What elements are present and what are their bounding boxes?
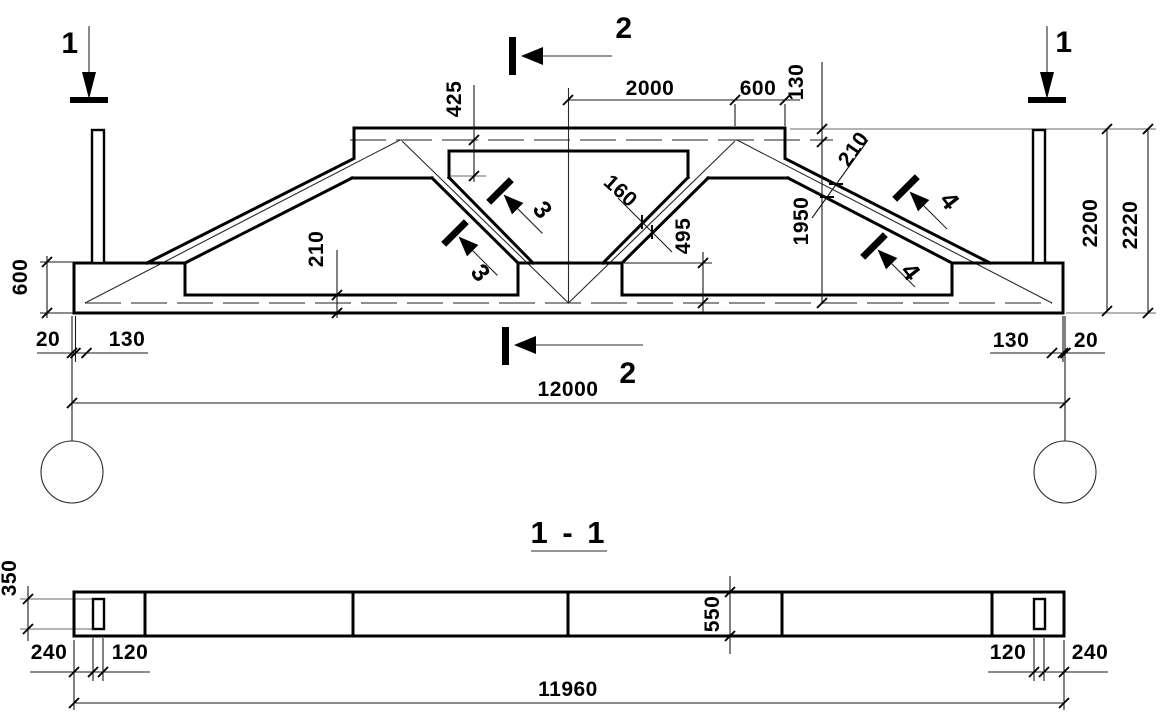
support-post-right — [1033, 130, 1045, 263]
dim-12000: 12000 — [538, 378, 599, 401]
section-arrow-left-icon — [514, 336, 536, 354]
section-marker-1-right: 1 — [1028, 26, 1073, 103]
section-marker-2-top: 2 — [509, 12, 633, 75]
section-arrow-down-icon — [82, 72, 96, 99]
cut-plane-bar — [502, 327, 509, 365]
section-outline — [74, 592, 1064, 636]
cut-plane-bar — [509, 37, 516, 75]
dim-210-chord: 210 — [305, 231, 328, 268]
support-post-left — [92, 130, 104, 263]
dim-425: 425 — [443, 81, 466, 118]
marker-label: 1 — [61, 27, 78, 60]
section-marker-3-upper-label: 3 — [527, 196, 558, 225]
dim-160-web: 160 — [599, 170, 642, 212]
grid-bubble-right — [1034, 441, 1096, 503]
elevation-view: 2000 600 130 425 1950 495 600 210 160 21… — [9, 12, 1156, 503]
dim-240-left: 240 — [31, 641, 68, 664]
cut-plane-bar — [70, 97, 108, 103]
cut-plane-bar — [1028, 97, 1066, 103]
dim-130-right: 130 — [993, 329, 1030, 352]
dim-120-right: 120 — [990, 641, 1027, 664]
socket-hole-right — [1034, 599, 1045, 629]
dim-2220: 2220 — [1119, 201, 1142, 250]
dim-2200: 2200 — [1079, 199, 1102, 248]
marker-label: 1 — [1055, 26, 1072, 59]
marker-label: 2 — [615, 12, 632, 45]
section-arrow-down-icon — [1040, 72, 1054, 99]
marker-label: 2 — [619, 357, 636, 390]
section-gray-extensions — [20, 599, 93, 629]
dim-240-right: 240 — [1072, 641, 1109, 664]
dim-130-left: 130 — [109, 328, 146, 351]
dim-20-right: 20 — [1074, 329, 1098, 352]
section-marker-1-left: 1 — [61, 26, 108, 103]
dim-495: 495 — [672, 218, 695, 255]
dim-350: 350 — [0, 560, 21, 597]
section-title: 1 - 1 — [530, 515, 607, 550]
drawing-sheet: 2000 600 130 425 1950 495 600 210 160 21… — [0, 0, 1161, 718]
grid-bubble-left — [41, 441, 103, 503]
section-arrow-left-icon — [521, 47, 543, 65]
dim-210-slope: 210 — [834, 128, 874, 171]
section-1-1-view: 1 - 1 350 240 120 550 120 240 11960 — [0, 515, 1108, 710]
dim-600-left: 600 — [9, 259, 32, 296]
section-marker-4-upper-label: 4 — [934, 187, 965, 216]
dim-1950: 1950 — [790, 197, 813, 246]
dim-120-left: 120 — [112, 641, 149, 664]
dim-600-top: 600 — [740, 77, 777, 100]
dim-20-left: 20 — [36, 328, 60, 351]
dim-550: 550 — [701, 596, 724, 633]
dim-11960: 11960 — [538, 678, 598, 701]
socket-hole-left — [93, 599, 104, 629]
dim-2000: 2000 — [626, 77, 675, 100]
truss-drawing: 2000 600 130 425 1950 495 600 210 160 21… — [0, 0, 1161, 718]
dim-130-top: 130 — [785, 64, 808, 101]
section-marker-3-lower-label: 3 — [465, 259, 496, 288]
